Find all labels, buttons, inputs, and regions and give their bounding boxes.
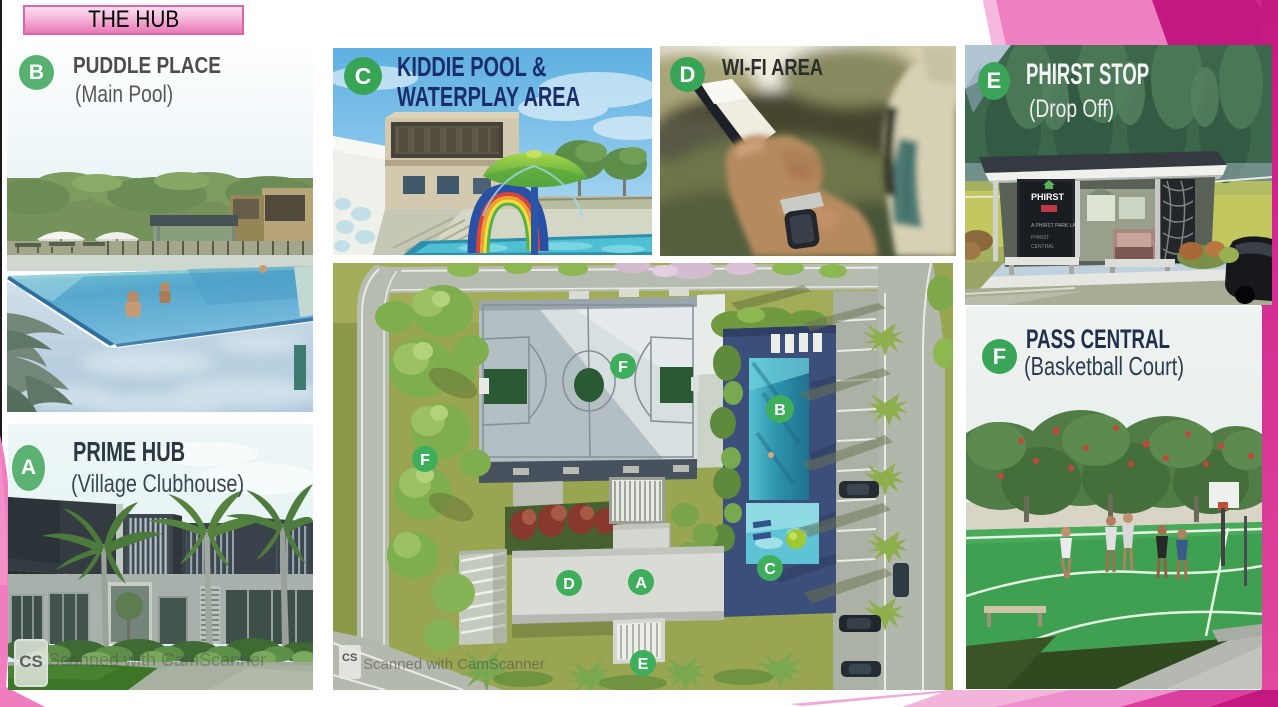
svg-text:E: E — [638, 656, 649, 673]
svg-text:F: F — [420, 452, 430, 469]
svg-text:A: A — [635, 575, 647, 592]
svg-text:PHIRST: PHIRST — [1031, 235, 1049, 241]
svg-text:PHIRST: PHIRST — [1031, 192, 1065, 202]
svg-text:C: C — [764, 561, 776, 578]
svg-text:D: D — [563, 576, 575, 593]
svg-text:CS: CS — [342, 652, 357, 664]
svg-text:Scanned with CamScanner: Scanned with CamScanner — [363, 656, 545, 673]
svg-text:CENTRAL: CENTRAL — [1031, 244, 1055, 250]
svg-text:F: F — [618, 359, 628, 376]
svg-text:B: B — [774, 402, 786, 419]
